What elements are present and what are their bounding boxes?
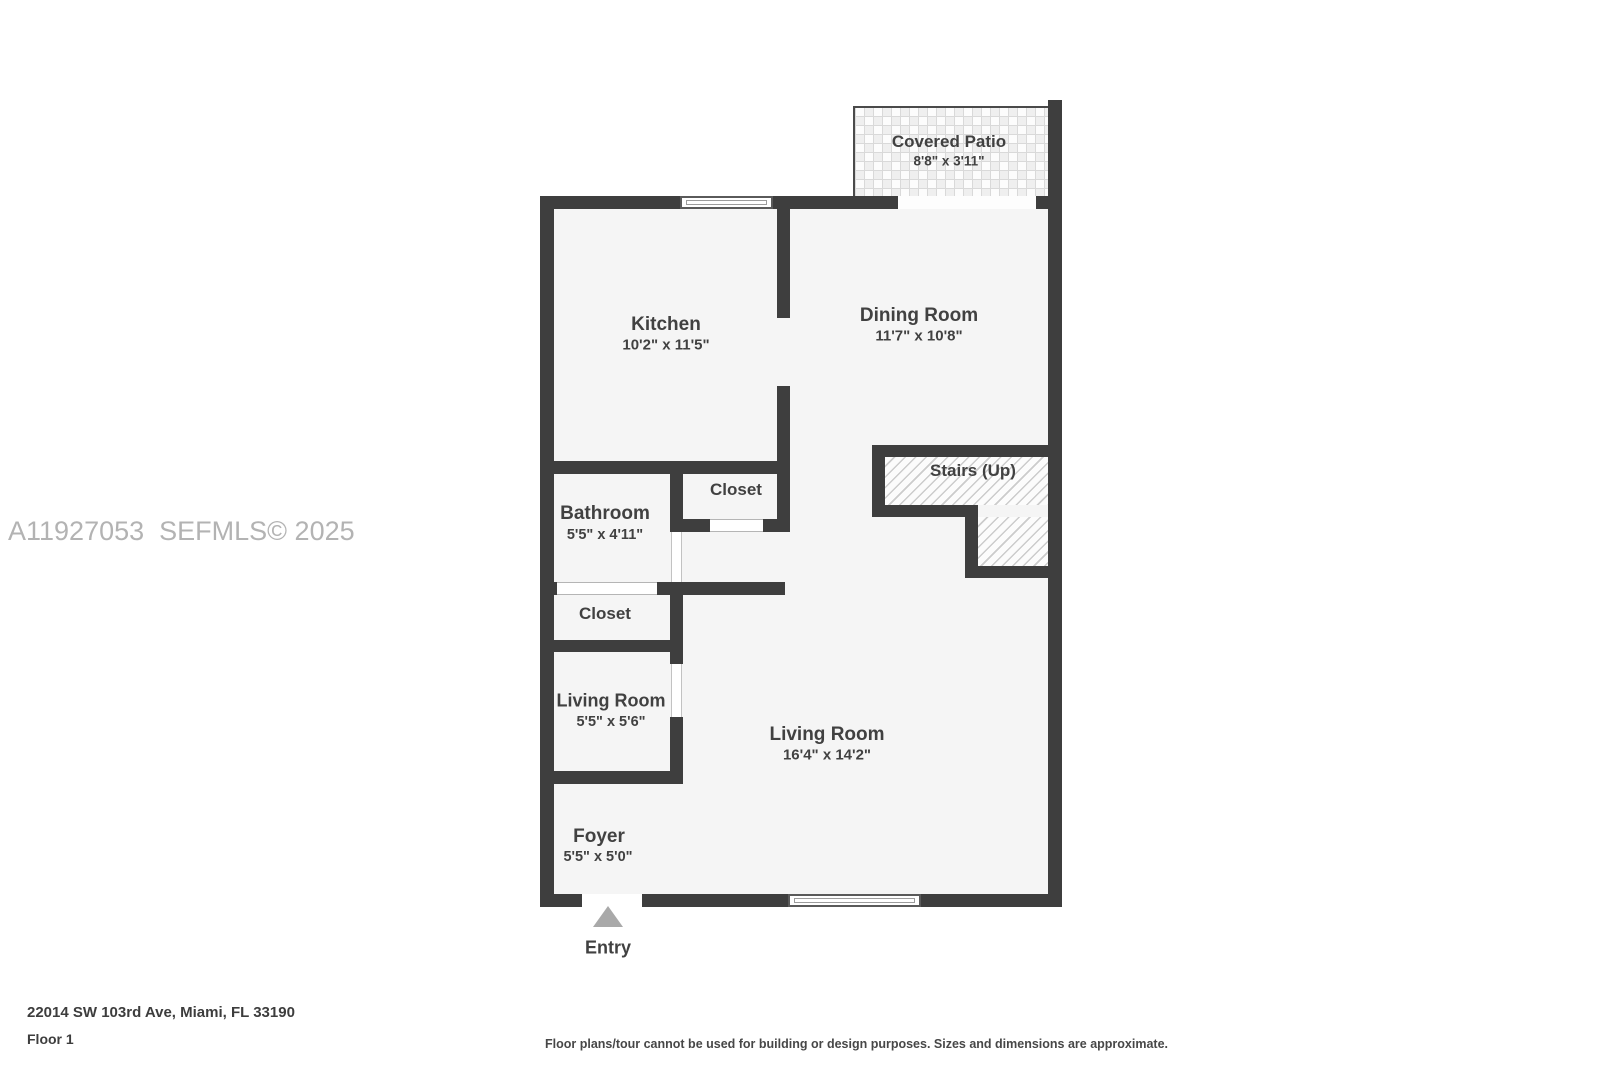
wall-living-small-right-lower	[670, 717, 683, 772]
wall-top-segment-left	[540, 196, 680, 209]
room-dims-dining-room: 11'7" x 10'8"	[875, 328, 962, 345]
wall-top-segment-mid	[773, 196, 898, 209]
stairs-hatch-lower	[978, 517, 1048, 566]
room-label-kitchen: Kitchen	[631, 314, 701, 336]
room-label-living-small: Living Room	[557, 691, 666, 712]
room-label-covered-patio: Covered Patio	[892, 132, 1006, 152]
room-dims-living-main: 16'4" x 14'2"	[783, 747, 871, 764]
room-dims-foyer: 5'5" x 5'0"	[563, 849, 632, 865]
room-dims-bathroom: 5'5" x 4'11"	[567, 527, 643, 543]
living-small-door	[671, 664, 682, 717]
entry-label: Entry	[585, 938, 631, 959]
wall-living-small-bottom	[540, 771, 683, 784]
wall-bottom-segment-left	[540, 894, 582, 907]
wall-closet-upper-bottom-right	[763, 519, 790, 532]
wall-hall-stub	[657, 582, 785, 595]
entry-arrow-icon	[593, 906, 623, 927]
room-dims-covered-patio: 8'8" x 3'11"	[913, 154, 984, 169]
patio-threshold-opening	[898, 196, 1036, 209]
wall-top-segment-right	[1036, 196, 1048, 209]
wall-stairs-top	[872, 445, 1048, 457]
kitchen-window-glass	[686, 200, 767, 205]
wall-kitchen-dining-lower	[777, 386, 790, 531]
room-dims-kitchen: 10'2" x 11'5"	[622, 337, 709, 354]
room-label-dining-room: Dining Room	[860, 305, 978, 327]
room-label-closet-upper: Closet	[710, 480, 762, 500]
property-address: 22014 SW 103rd Ave, Miami, FL 33190	[27, 1004, 295, 1021]
room-label-foyer: Foyer	[573, 826, 625, 848]
room-dims-living-small: 5'5" x 5'6"	[576, 714, 645, 730]
wall-bottom-segment-right	[921, 894, 1062, 907]
wall-closet-lower-bottom	[540, 640, 683, 652]
living-room-window	[788, 894, 921, 907]
wall-closet-upper-bottom-left	[670, 519, 710, 532]
floor-label: Floor 1	[27, 1031, 74, 1047]
wall-bottom-segment-mid	[642, 894, 788, 907]
wall-stairs-mid	[872, 505, 967, 517]
wall-living-small-right-upper	[670, 652, 683, 664]
kitchen-window	[680, 196, 773, 209]
closet-upper-door	[710, 519, 763, 532]
living-room-window-glass	[794, 898, 915, 903]
room-label-stairs: Stairs (Up)	[930, 461, 1016, 481]
wall-stairs-bottom	[965, 566, 1048, 578]
wall-left	[540, 196, 554, 907]
disclaimer-text: Floor plans/tour cannot be used for buil…	[545, 1037, 1168, 1051]
closet-lower-door	[557, 582, 657, 595]
room-label-living-main: Living Room	[769, 724, 884, 746]
room-label-closet-lower: Closet	[579, 604, 631, 624]
wall-kitchen-dining-upper	[777, 209, 790, 318]
wall-bath-bottom-left	[540, 582, 557, 595]
room-label-bathroom: Bathroom	[560, 503, 650, 525]
wall-right	[1048, 100, 1062, 907]
bathroom-door	[671, 532, 682, 582]
mls-watermark: A11927053 SEFMLS© 2025	[8, 516, 355, 547]
wall-kitchen-bottom	[540, 461, 790, 474]
floor-plan-page: Covered Patio 8'8" x 3'11" Kitchen 10'2"…	[0, 0, 1600, 1066]
